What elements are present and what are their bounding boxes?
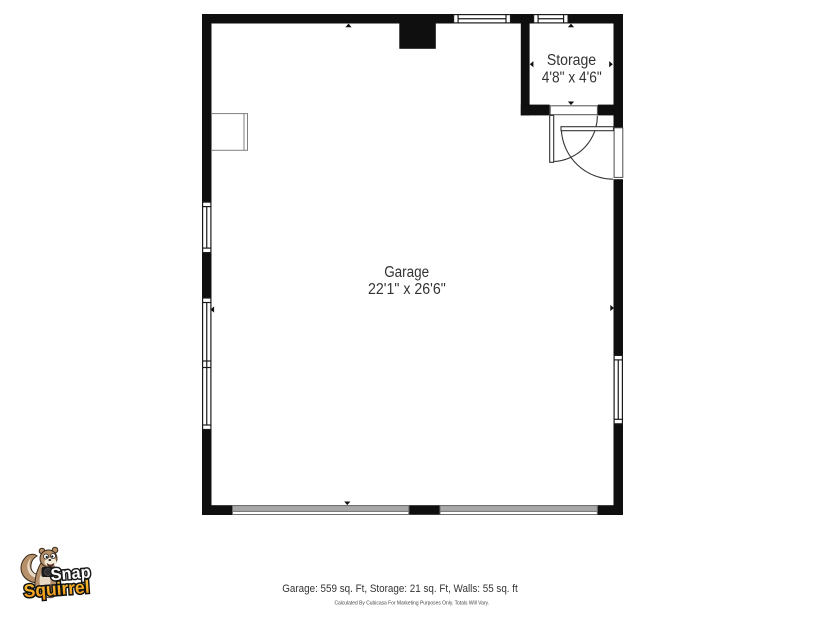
svg-text:Calculated By Cubicasa For Mar: Calculated By Cubicasa For Marketing Pur… — [334, 600, 489, 606]
svg-text:Storage: Storage — [547, 52, 596, 69]
svg-text:Garage: Garage — [384, 264, 429, 281]
svg-text:22'1" x 26'6": 22'1" x 26'6" — [368, 281, 446, 298]
svg-text:Garage: 559 sq. Ft, Storage: 2: Garage: 559 sq. Ft, Storage: 21 sq. Ft, … — [282, 583, 518, 595]
svg-text:4'8" x 4'6": 4'8" x 4'6" — [542, 70, 602, 87]
